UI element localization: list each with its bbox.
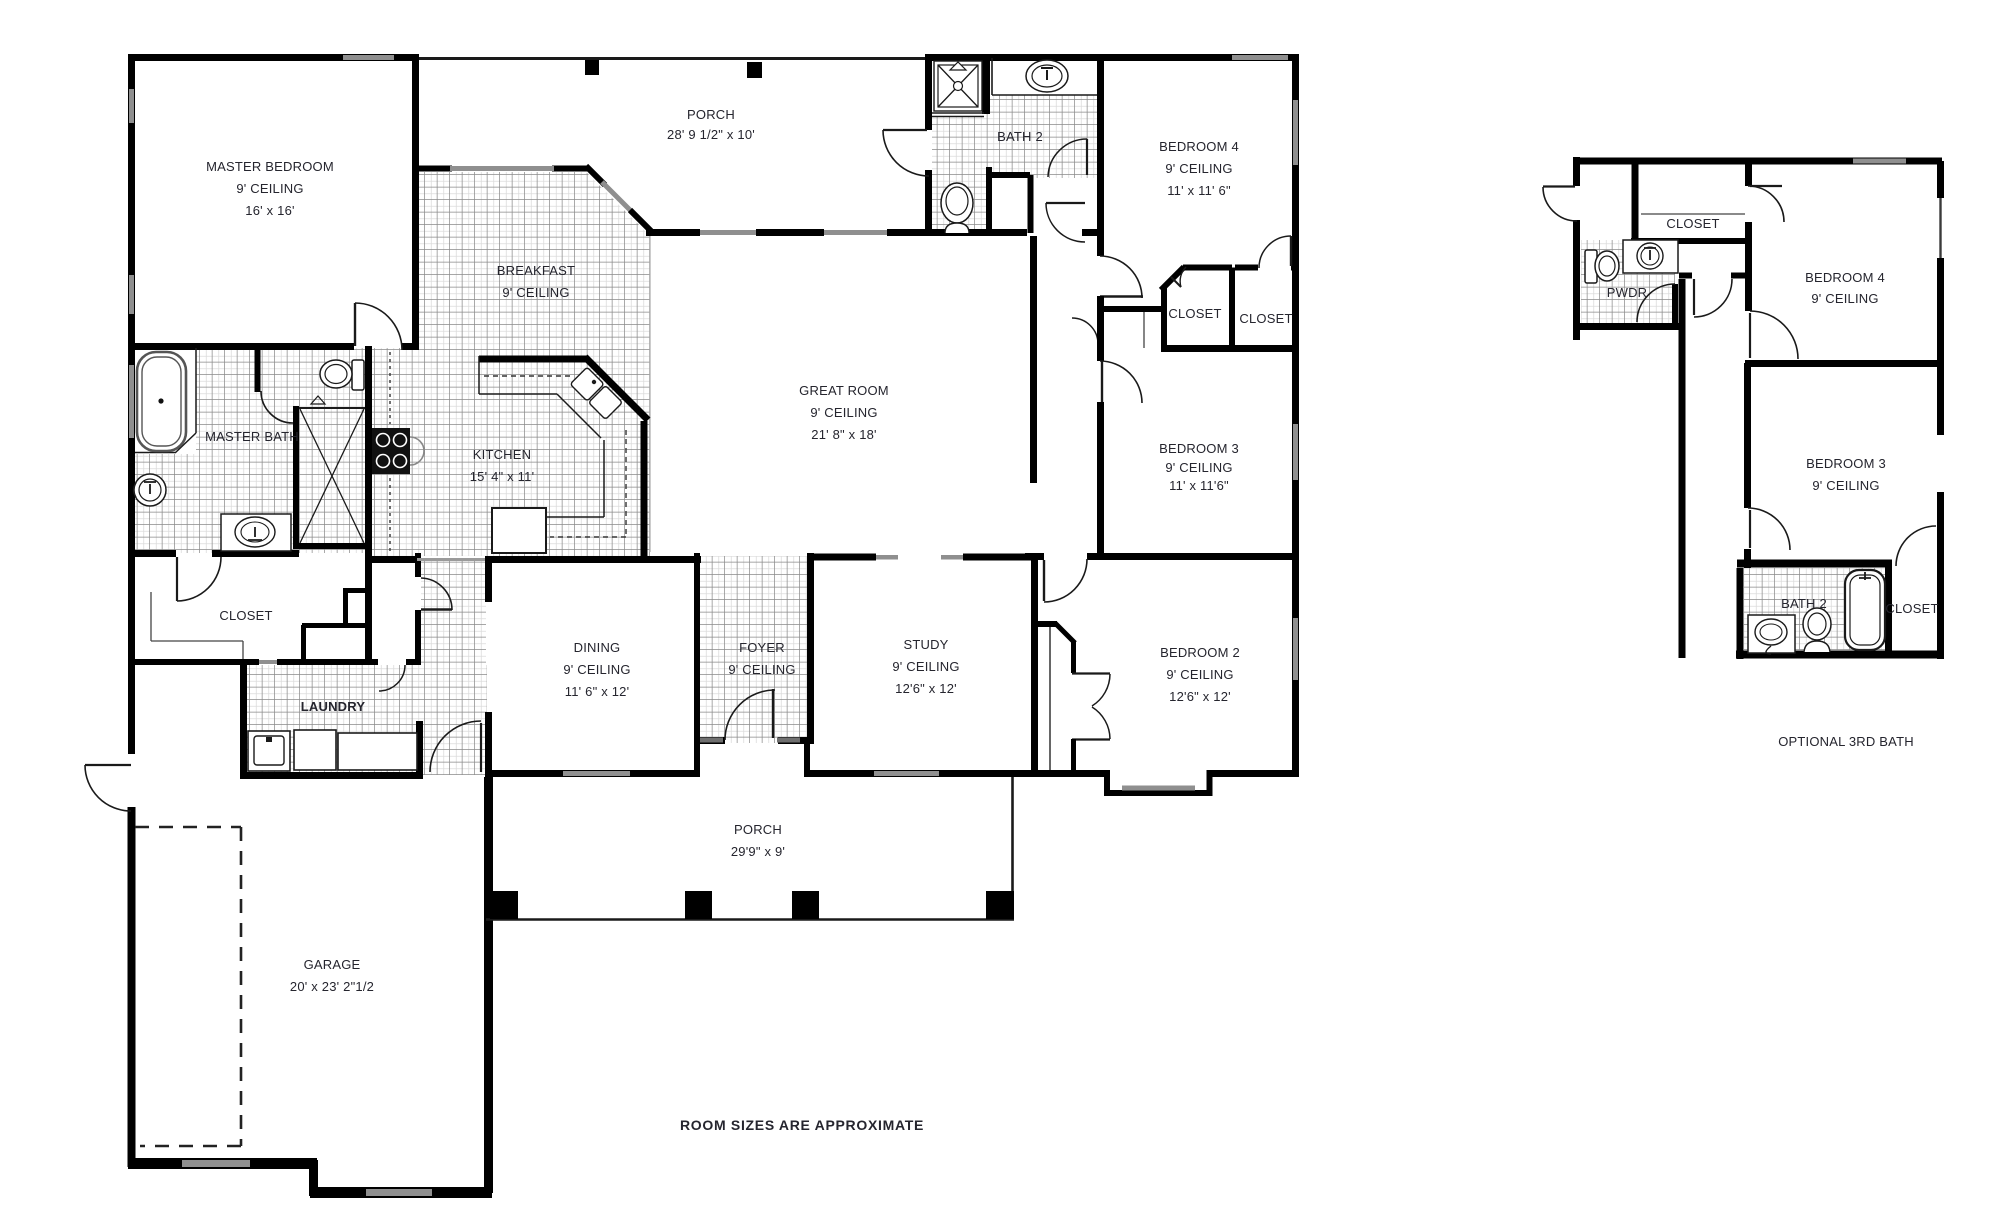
svg-text:MASTER BEDROOM: MASTER BEDROOM (206, 159, 334, 174)
svg-text:11' x 11'6": 11' x 11'6" (1169, 478, 1229, 493)
svg-text:BREAKFAST: BREAKFAST (497, 263, 575, 278)
svg-text:21' 8" x 18': 21' 8" x 18' (811, 427, 876, 442)
svg-text:MASTER BATH: MASTER BATH (205, 429, 299, 444)
svg-text:12'6" x 12': 12'6" x 12' (895, 681, 957, 696)
svg-text:12'6" x 12': 12'6" x 12' (1169, 689, 1231, 704)
svg-text:CLOSET: CLOSET (1885, 601, 1938, 616)
svg-text:OPTIONAL 3RD BATH: OPTIONAL 3RD BATH (1778, 734, 1914, 749)
svg-text:LAUNDRY: LAUNDRY (301, 699, 366, 714)
svg-text:CLOSET: CLOSET (1239, 311, 1292, 326)
svg-text:9' CEILING: 9' CEILING (728, 662, 795, 677)
svg-text:BATH 2: BATH 2 (1781, 596, 1827, 611)
svg-text:GARAGE: GARAGE (304, 957, 361, 972)
svg-text:ROOM SIZES ARE APPROXIMATE: ROOM SIZES ARE APPROXIMATE (680, 1117, 924, 1133)
svg-text:FOYER: FOYER (739, 640, 785, 655)
svg-text:BEDROOM 4: BEDROOM 4 (1159, 139, 1239, 154)
svg-text:DINING: DINING (574, 640, 621, 655)
svg-text:9' CEILING: 9' CEILING (1811, 291, 1878, 306)
svg-text:29'9" x 9': 29'9" x 9' (731, 844, 785, 859)
svg-text:9' CEILING: 9' CEILING (1812, 478, 1879, 493)
svg-text:28' 9 1/2" x 10': 28' 9 1/2" x 10' (667, 127, 755, 142)
svg-text:9' CEILING: 9' CEILING (1166, 667, 1233, 682)
svg-text:STUDY: STUDY (903, 637, 948, 652)
svg-text:20' x 23' 2"1/2: 20' x 23' 2"1/2 (290, 979, 374, 994)
svg-text:BEDROOM 2: BEDROOM 2 (1160, 645, 1240, 660)
svg-text:BATH 2: BATH 2 (997, 129, 1043, 144)
svg-text:BEDROOM 3: BEDROOM 3 (1159, 441, 1239, 456)
svg-text:9' CEILING: 9' CEILING (892, 659, 959, 674)
svg-text:CLOSET: CLOSET (219, 608, 272, 623)
svg-text:9' CEILING: 9' CEILING (236, 181, 303, 196)
svg-text:CLOSET: CLOSET (1168, 306, 1221, 321)
svg-text:BEDROOM 4: BEDROOM 4 (1805, 270, 1885, 285)
svg-text:15' 4" x 11': 15' 4" x 11' (470, 469, 535, 484)
svg-text:PORCH: PORCH (734, 822, 782, 837)
svg-text:KITCHEN: KITCHEN (473, 447, 531, 462)
svg-text:16' x 16': 16' x 16' (245, 203, 294, 218)
svg-text:11' x 11' 6": 11' x 11' 6" (1167, 183, 1231, 198)
svg-text:PWDR: PWDR (1607, 285, 1648, 300)
svg-text:9' CEILING: 9' CEILING (1165, 460, 1232, 475)
svg-text:9' CEILING: 9' CEILING (563, 662, 630, 677)
svg-text:9' CEILING: 9' CEILING (1165, 161, 1232, 176)
svg-text:9' CEILING: 9' CEILING (810, 405, 877, 420)
svg-text:PORCH: PORCH (687, 107, 735, 122)
svg-text:11' 6" x 12': 11' 6" x 12' (565, 684, 630, 699)
svg-text:BEDROOM 3: BEDROOM 3 (1806, 456, 1886, 471)
svg-text:CLOSET: CLOSET (1666, 216, 1719, 231)
svg-text:GREAT ROOM: GREAT ROOM (799, 383, 889, 398)
svg-text:9' CEILING: 9' CEILING (502, 285, 569, 300)
